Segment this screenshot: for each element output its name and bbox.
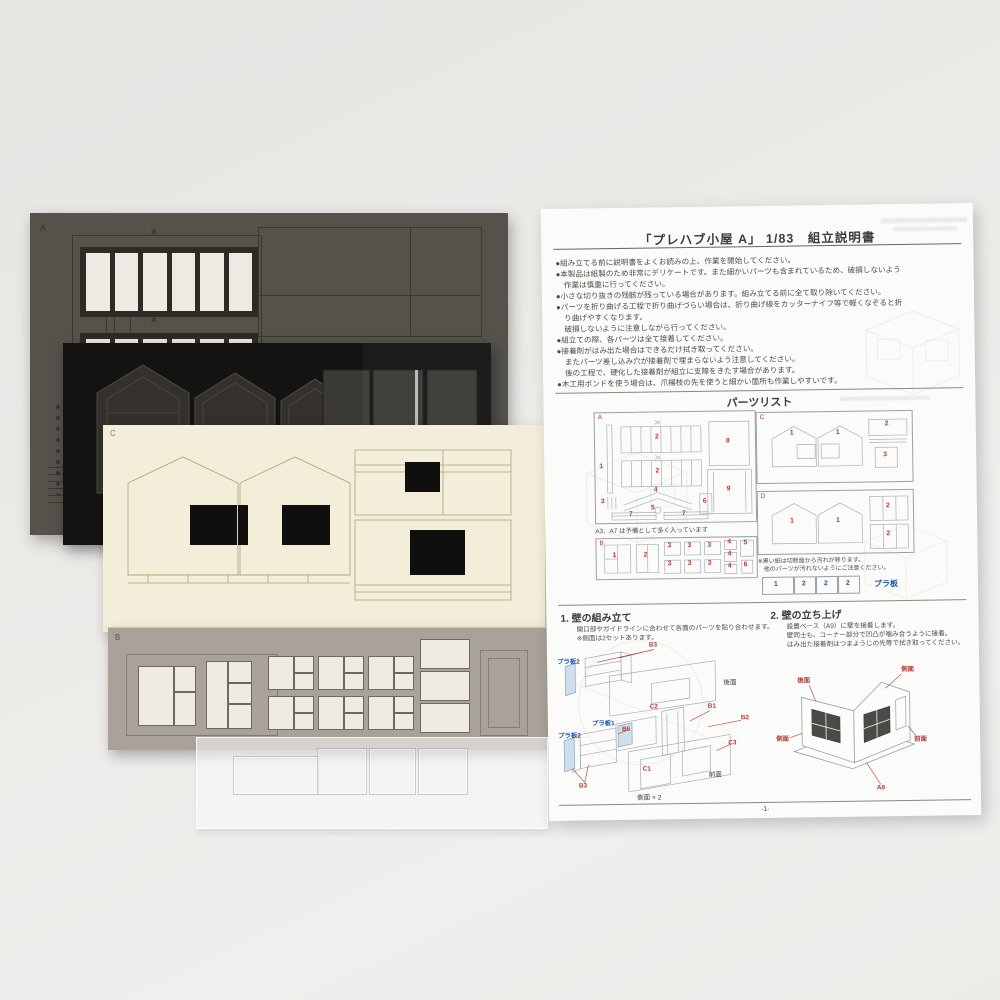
clear-sheet-score: [317, 748, 367, 795]
instruction-sheet: 「プレハブ小屋 A」 1/83 組立説明書 ●組み立てる前に説明書をよくお読みの…: [541, 203, 982, 821]
part-number: 2: [655, 467, 659, 474]
step1-label-b2: B2: [741, 714, 749, 721]
part-number: 5: [743, 539, 747, 546]
step1-diagram: B3 プラ板2 後面 C2 B1 B2 プラ板1 B6 プラ板2 C3 C1 B…: [557, 640, 774, 803]
step1-label-b6: B6: [622, 726, 630, 733]
part-number: 3: [687, 542, 691, 549]
sheet-c-letter: C: [110, 429, 116, 438]
sheet-b-window: [206, 661, 252, 729]
part-number: 8: [726, 437, 730, 444]
part-number: 1: [613, 552, 617, 559]
intro-line: り曲げやすくなります。: [556, 313, 647, 325]
clear-sheet-score: [233, 756, 319, 795]
part-number: 1: [790, 430, 794, 437]
sheet-b-panel: [420, 703, 470, 733]
part-number: 4: [728, 550, 732, 557]
step1-label-front: 前面: [709, 769, 722, 779]
part-number: 2: [655, 433, 659, 440]
part-number: 3: [883, 451, 887, 458]
part-number: 3: [601, 498, 605, 505]
sheet-b-window-small: [318, 656, 364, 690]
part-number: 2: [886, 502, 890, 509]
parts-box-b-drawing: [596, 537, 757, 579]
step1-label-b3b: B3: [579, 782, 587, 789]
pla-number: 2: [802, 580, 806, 587]
step1-label-pla2b: プラ板2: [558, 731, 581, 740]
part-number: 3: [707, 542, 711, 549]
part-number: 1: [790, 518, 794, 525]
sheet-b-window: [138, 666, 196, 726]
parts-box-a: A: [594, 410, 758, 524]
part-number: 9: [727, 485, 731, 492]
sheet-b-window-small: [318, 696, 364, 730]
pla-number: 1: [774, 581, 778, 588]
sheet-a-cut-mark: ✕: [150, 315, 158, 326]
part-number: 6: [744, 561, 748, 568]
sheet-a-roof-panel: [258, 227, 482, 337]
part-number: 6: [703, 498, 707, 505]
part-number: 1: [836, 429, 840, 436]
step2-label-side-r: 側面: [901, 664, 914, 673]
sheet-b-window-small: [368, 656, 414, 690]
sheet-c-cut-lines: [103, 425, 545, 632]
part-number: 2: [644, 552, 648, 559]
step1-label-pla2: プラ板2: [557, 657, 580, 666]
sheet-b-panel: [420, 671, 470, 701]
clear-sheet-score: [418, 748, 468, 795]
step2-label-rear: 後面: [797, 675, 810, 684]
pla-board-label: プラ板: [874, 578, 898, 589]
sheet-b-window-small: [368, 696, 414, 730]
step1-label-c2: C2: [650, 703, 658, 710]
part-number: 1: [599, 463, 603, 470]
part-number: 2: [886, 530, 890, 537]
sheet-a-roof-fold-line: [258, 295, 480, 296]
parts-box-d: D 1 1 2 2: [757, 489, 915, 555]
part-number: 3: [708, 560, 712, 567]
pla-number: 2: [824, 580, 828, 587]
parts-box-c-drawing: [757, 411, 913, 483]
photo-scene: A ✕ ✕: [0, 0, 1000, 1000]
pla-number: 2: [846, 580, 850, 587]
part-number: 3: [688, 560, 692, 567]
step1-label-pla1: プラ板1: [592, 718, 615, 727]
parts-box-a-note: A3、A7 は予備として多く入っています: [595, 525, 708, 536]
step1-label-c1: C1: [643, 766, 651, 773]
parts-sheet-clear-plastic: [196, 737, 548, 829]
parts-box-b: B 1 2 3 3 3 3 3 3 4 4 4 5: [595, 536, 758, 580]
step2-line: はみ出た接着剤はつまようじの先等で拭き取ってください。: [787, 636, 965, 648]
part-number: 4: [728, 562, 732, 569]
sheet-b-letter: B: [115, 633, 120, 642]
step1-label-b1: B1: [708, 703, 716, 710]
sheet-a-roof-seam: [410, 227, 411, 335]
step1-label-b3: B3: [649, 641, 657, 648]
parts-box-a-drawing: [595, 411, 757, 523]
step2-diagram: 後面 側面 前面 側面 A9: [775, 650, 929, 802]
step1-caption: 側面 × 2: [637, 791, 662, 801]
sheet-a-letter: A: [40, 223, 46, 233]
step2-label-front: 前面: [914, 734, 927, 743]
pla-board-row: 1 2 2 2 プラ板: [762, 573, 922, 597]
sheet-b-window-small: [268, 696, 314, 730]
step1-label-rear: 後面: [723, 676, 736, 686]
sheet-b-window-small: [268, 656, 314, 690]
part-number: 7: [682, 510, 686, 517]
part-number: 5: [651, 504, 655, 511]
sheet-a-cut-mark: ✕: [150, 227, 158, 238]
parts-sheet-c: C: [103, 425, 545, 632]
sheet-b-door-inner: [488, 658, 520, 728]
sheet-b-panel: [420, 639, 470, 669]
part-number: 3: [667, 542, 671, 549]
black-paper-note: 他のパーツが汚れないようにご注意ください。: [764, 562, 890, 573]
clear-sheet-score: [369, 748, 416, 795]
part-number: 4: [654, 486, 658, 493]
step2-label-a9: A9: [877, 784, 885, 791]
step1-label-c3: C3: [728, 739, 736, 746]
parts-box-c: C 1 1 2 3: [756, 410, 914, 484]
part-number: 2: [885, 420, 889, 427]
part-number: 1: [836, 517, 840, 524]
step2-label-side-l: 側面: [776, 734, 789, 743]
bleed-through-text: [881, 217, 967, 223]
parts-sheet-b: B: [108, 627, 548, 750]
sheet-a-window-row-1: [80, 247, 258, 317]
part-number: 7: [629, 511, 633, 518]
part-number: 4: [727, 538, 731, 545]
part-number: 3: [668, 560, 672, 567]
